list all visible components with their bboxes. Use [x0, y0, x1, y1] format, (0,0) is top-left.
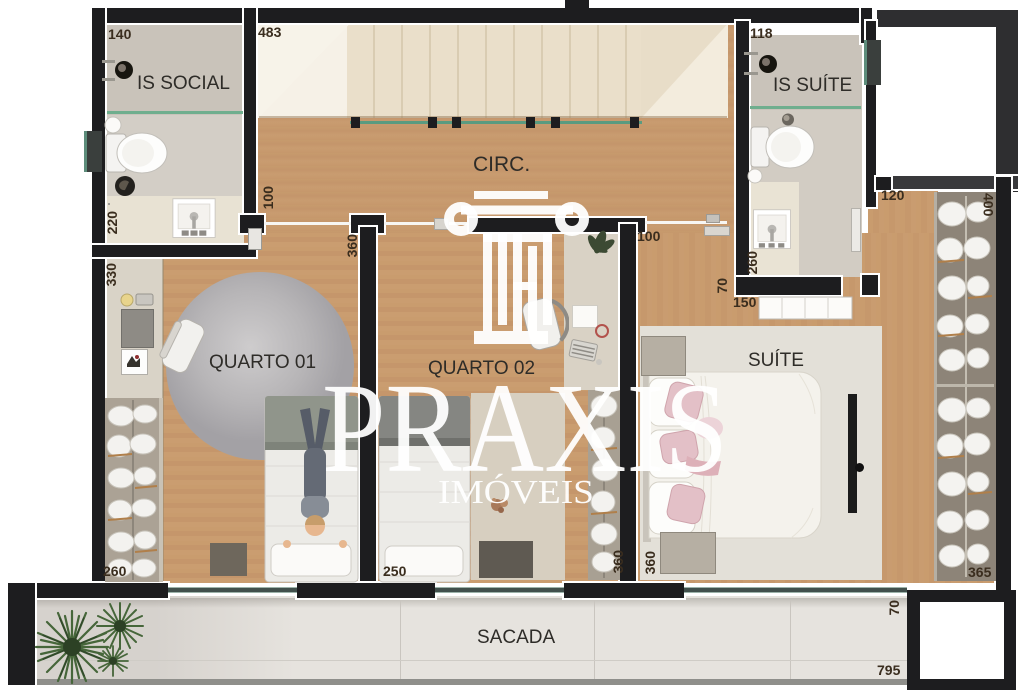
svg-text:IMÓVEIS: IMÓVEIS — [438, 473, 594, 511]
